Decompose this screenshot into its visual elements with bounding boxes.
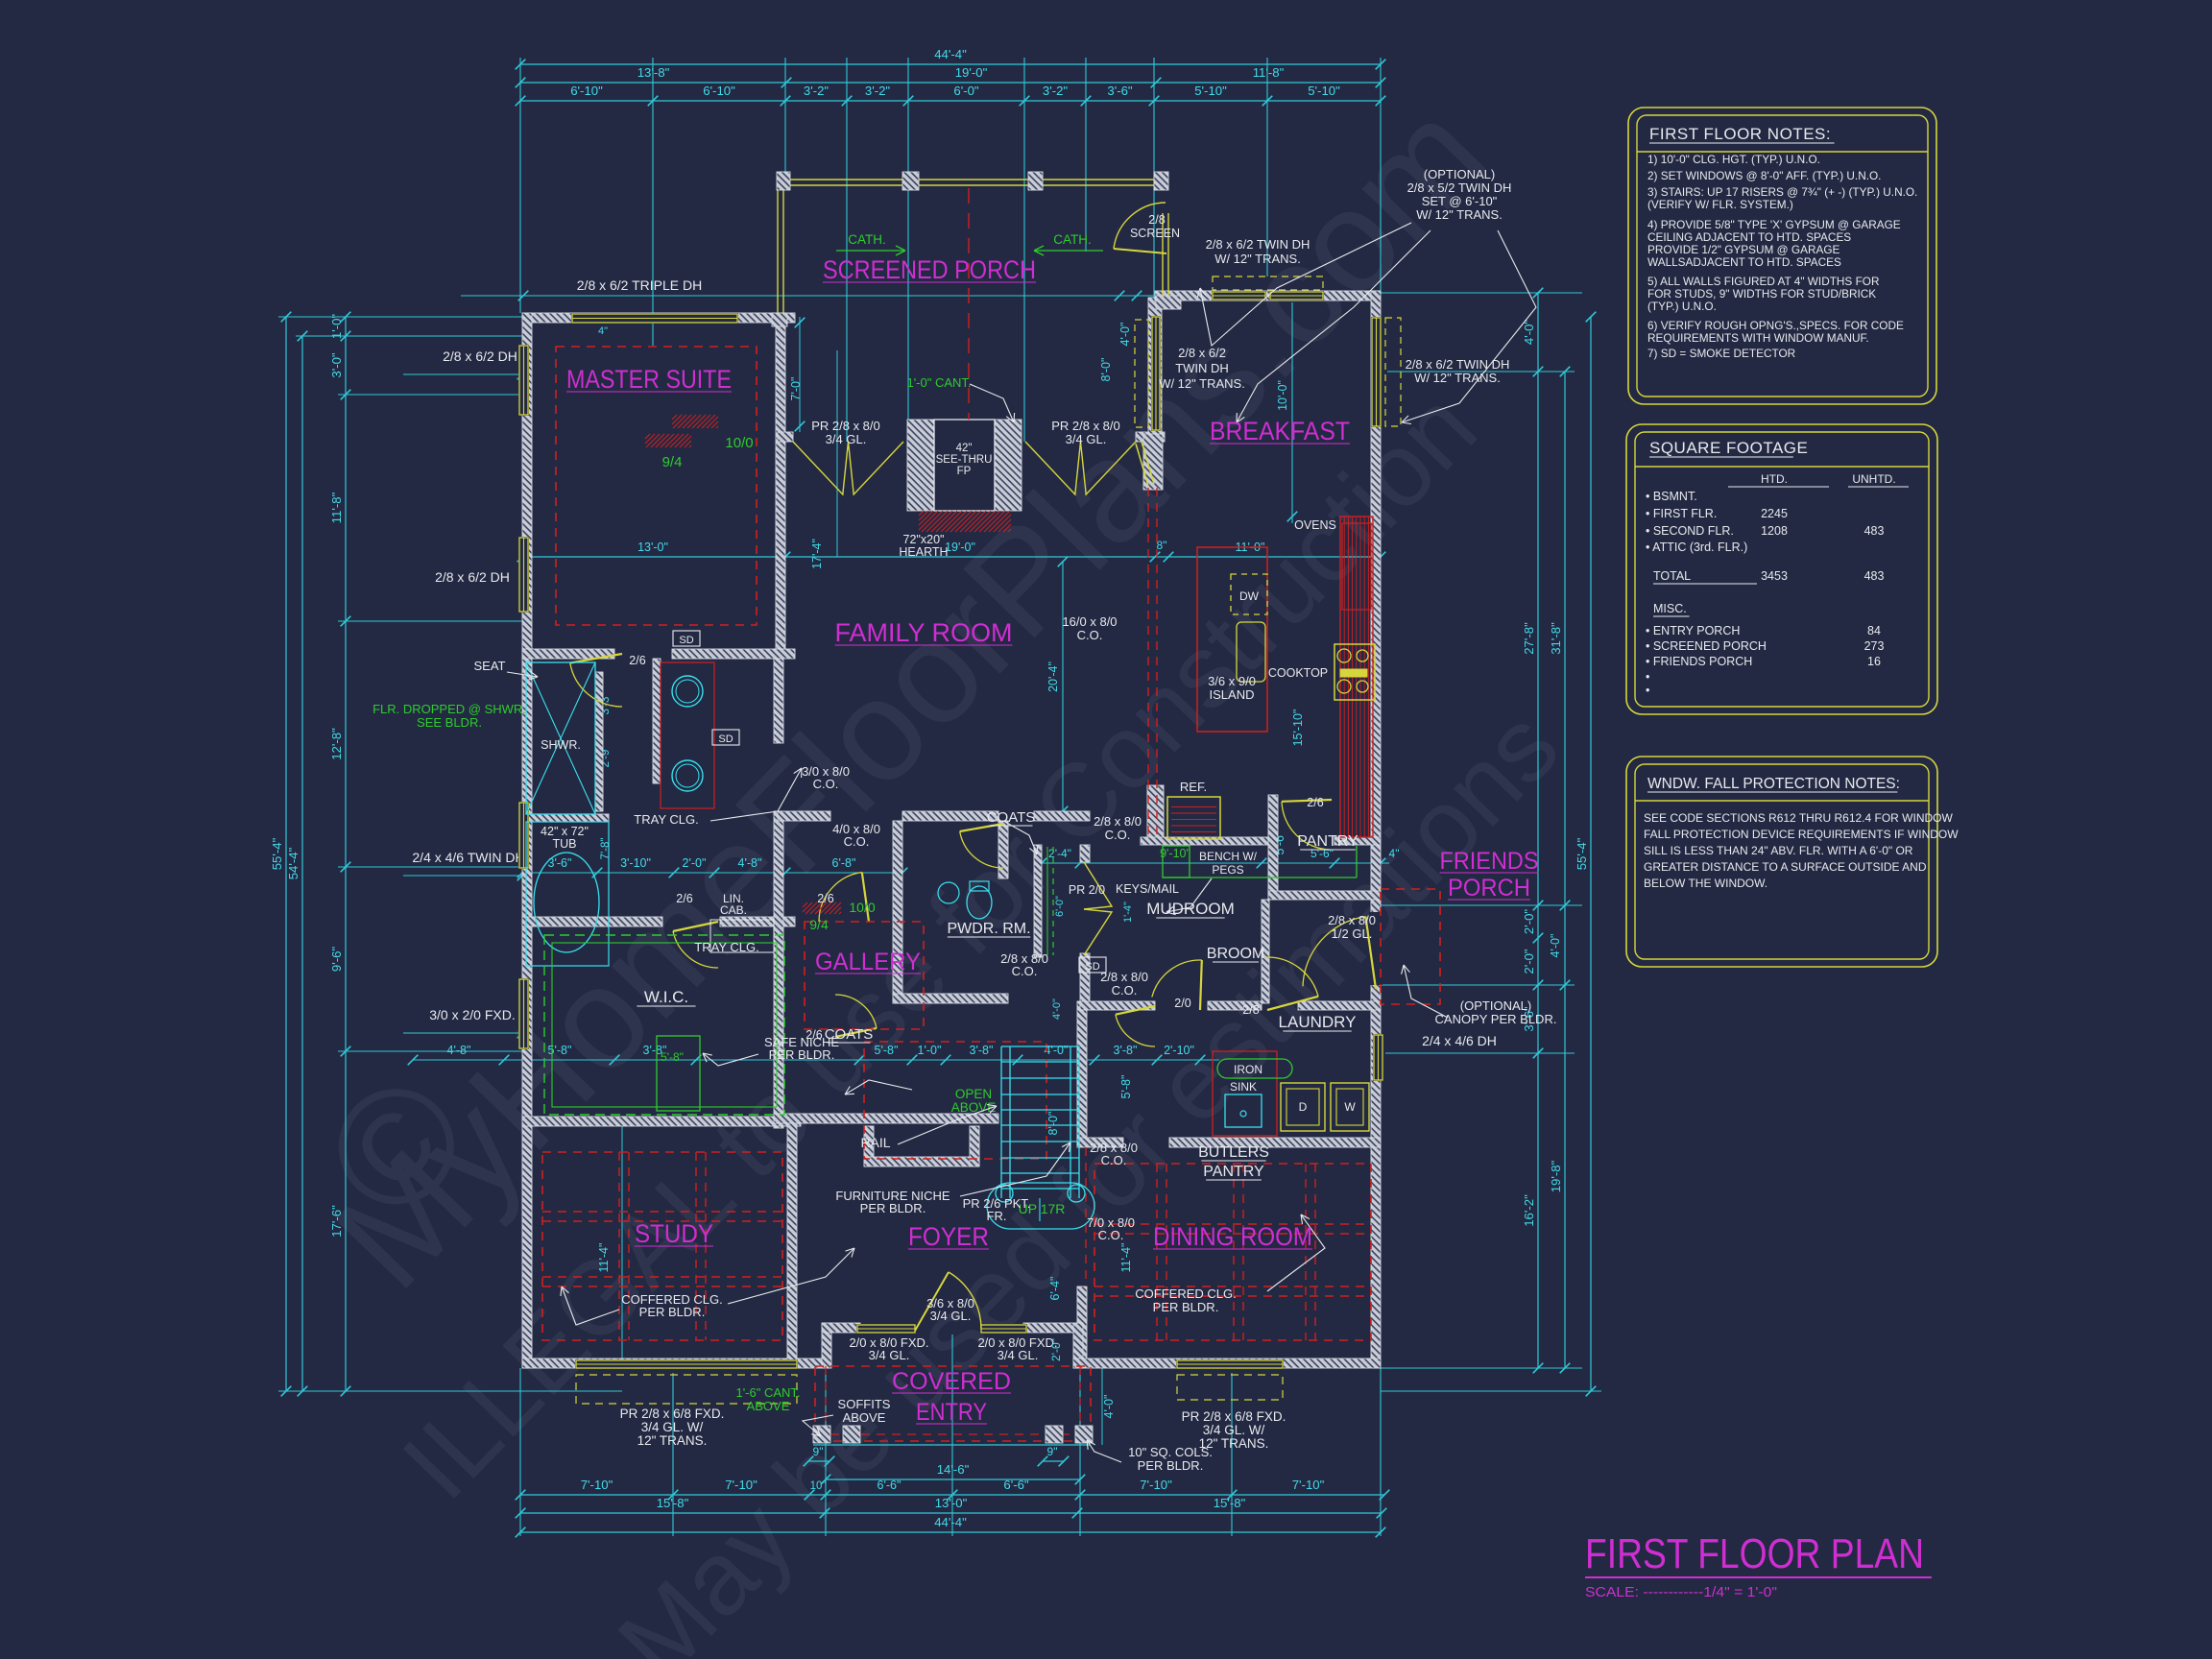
svg-text:27'-8": 27'-8" [1522,622,1536,655]
svg-text:SILL IS LESS THAN 24" ABV. FLR: SILL IS LESS THAN 24" ABV. FLR. WITH A 6… [1644,844,1913,857]
svg-text:GALLERY: GALLERY [815,949,921,975]
svg-text:2/0: 2/0 [1174,997,1190,1010]
svg-text:PER BLDR.: PER BLDR. [860,1201,926,1215]
svg-text:MASTER SUITE: MASTER SUITE [566,365,732,394]
svg-text:SOFFITS: SOFFITS [838,1397,891,1411]
svg-text:COATS: COATS [825,1026,874,1043]
svg-text:COOKTOP: COOKTOP [1268,666,1328,680]
svg-text:W/ 12" TRANS.: W/ 12" TRANS. [1214,252,1301,266]
svg-text:9": 9" [813,1445,824,1458]
svg-text:SET @ 6'-10": SET @ 6'-10" [1422,194,1498,208]
svg-text:TWIN DH: TWIN DH [1175,361,1229,375]
svg-text:17'-4": 17'-4" [810,539,824,569]
svg-text:C.O.: C.O. [1101,1153,1127,1167]
svg-text:13'-8": 13'-8" [637,65,670,80]
svg-text:FOYER: FOYER [908,1222,989,1251]
svg-text:• ENTRY PORCH: • ENTRY PORCH [1646,624,1740,637]
svg-text:1'-0": 1'-0" [918,1044,942,1057]
svg-text:CEILING ADJACENT TO HTD. SPACE: CEILING ADJACENT TO HTD. SPACES [1647,230,1851,244]
svg-text:2/8 x 8/0: 2/8 x 8/0 [1328,913,1376,927]
svg-text:SINK: SINK [1230,1080,1257,1094]
svg-text:3/4 GL. W/: 3/4 GL. W/ [1203,1423,1265,1437]
svg-text:• FRIENDS PORCH: • FRIENDS PORCH [1646,655,1752,668]
svg-text:(OPTIONAL): (OPTIONAL) [1460,998,1531,1013]
svg-text:2/8: 2/8 [1148,213,1165,227]
svg-text:ABOVE: ABOVE [747,1399,790,1413]
svg-text:3453: 3453 [1761,569,1788,583]
svg-text:DW: DW [1239,589,1260,603]
svg-text:REF.: REF. [1180,780,1207,794]
svg-text:PROVIDE 1/2" GYPSUM @ GARAGE: PROVIDE 1/2" GYPSUM @ GARAGE [1647,243,1840,256]
svg-text:13'-0": 13'-0" [637,541,668,554]
svg-text:2/8: 2/8 [1242,1003,1259,1017]
svg-text:FR.: FR. [987,1209,1007,1223]
svg-text:3) STAIRS: UP 17 RISERS @ 7¾": 3) STAIRS: UP 17 RISERS @ 7¾" (+ -) (TYP… [1647,185,1917,199]
svg-text:BROOM: BROOM [1207,946,1264,962]
svg-text:42": 42" [956,443,973,454]
svg-text:SEE BLDR.: SEE BLDR. [417,715,482,730]
svg-text:6) VERIFY ROUGH OPNG'S.,SPECS.: 6) VERIFY ROUGH OPNG'S.,SPECS. FOR CODE [1647,319,1904,332]
svg-text:PANTRY: PANTRY [1203,1164,1264,1180]
svg-text:KEYS/MAIL: KEYS/MAIL [1116,882,1179,896]
svg-text:12'-8": 12'-8" [329,728,344,760]
svg-text:10'-0": 10'-0" [1276,380,1289,411]
svg-text:FOR STUDS, 9" WIDTHS FOR STUD/: FOR STUDS, 9" WIDTHS FOR STUD/BRICK [1647,287,1876,301]
svg-text:31'-8": 31'-8" [1549,622,1563,655]
svg-text:1/2 GL.: 1/2 GL. [1332,926,1373,941]
svg-text:OPEN: OPEN [955,1087,992,1101]
svg-text:2'-0": 2'-0" [683,856,707,870]
svg-text:IRON: IRON [1234,1063,1262,1076]
svg-text:ABOVE: ABOVE [951,1100,997,1115]
svg-text:2/6: 2/6 [629,654,645,667]
svg-text:FLR. DROPPED @ SHWR.: FLR. DROPPED @ SHWR. [373,702,526,716]
svg-text:9/4: 9/4 [662,454,683,470]
svg-text:7'-10": 7'-10" [725,1478,757,1492]
svg-text:2/4 x 4/6 TWIN DH: 2/4 x 4/6 TWIN DH [412,850,524,865]
svg-text:273: 273 [1864,639,1885,653]
svg-text:TOTAL: TOTAL [1653,569,1691,583]
svg-text:OVENS: OVENS [1294,518,1336,532]
svg-text:7'-10": 7'-10" [1292,1478,1325,1492]
svg-text:5'-8": 5'-8" [661,1050,684,1064]
svg-text:5) ALL WALLS FIGURED AT 4" WID: 5) ALL WALLS FIGURED AT 4" WIDTHS FOR [1647,275,1879,288]
svg-text:BUTLERS: BUTLERS [1198,1144,1269,1161]
svg-text:54'-4": 54'-4" [286,847,301,879]
svg-text:11'-4": 11'-4" [597,1243,611,1273]
svg-text:2/8 x 5/2 TWIN DH: 2/8 x 5/2 TWIN DH [1407,180,1512,195]
svg-text:2/6: 2/6 [1307,796,1323,809]
svg-text:3'-6": 3'-6" [1107,84,1133,98]
svg-text:(OPTIONAL): (OPTIONAL) [1424,167,1495,181]
svg-text:SEE CODE SECTIONS R612 THRU R6: SEE CODE SECTIONS R612 THRU R612.4 FOR W… [1644,811,1954,825]
svg-text:GREATER DISTANCE TO A SURFACE: GREATER DISTANCE TO A SURFACE OUTSIDE AN… [1644,860,1927,874]
svg-text:3'-2": 3'-2" [804,84,829,98]
svg-text:PEGS: PEGS [1212,863,1243,877]
svg-text:8'-0": 8'-0" [1099,358,1113,382]
svg-text:2/8 x 6/2: 2/8 x 6/2 [1178,346,1226,360]
svg-text:4": 4" [598,325,608,337]
svg-text:9'-6": 9'-6" [329,947,344,973]
svg-text:PR 2/0: PR 2/0 [1069,883,1105,897]
svg-text:BREAKFAST: BREAKFAST [1210,417,1350,445]
svg-text:2/8 x 6/2 TWIN DH: 2/8 x 6/2 TWIN DH [1206,237,1310,252]
svg-text:SD: SD [1085,961,1099,973]
svg-text:FRIENDS: FRIENDS [1440,848,1539,875]
svg-text:7) SD = SMOKE DETECTOR: 7) SD = SMOKE DETECTOR [1647,347,1795,360]
svg-text:6'-10": 6'-10" [570,84,603,98]
svg-text:STUDY: STUDY [635,1219,713,1248]
svg-text:2'-0": 2'-0" [1049,1338,1063,1361]
svg-text:4'-8": 4'-8" [447,1044,471,1057]
svg-text:LAUNDRY: LAUNDRY [1279,1013,1357,1031]
svg-text:TRAY CLG.: TRAY CLG. [634,812,698,827]
svg-text:• BSMNT.: • BSMNT. [1646,490,1697,503]
svg-text:7'-0": 7'-0" [789,377,803,401]
svg-text:W/ 12" TRANS.: W/ 12" TRANS. [1159,376,1245,391]
svg-text:DINING ROOM: DINING ROOM [1153,1222,1312,1251]
svg-text:2'-0": 2'-0" [1522,909,1536,935]
svg-text:W.I.C.: W.I.C. [644,988,688,1006]
svg-text:5'-8": 5'-8" [548,1044,572,1057]
svg-text:1'-0" CANT.: 1'-0" CANT. [906,375,971,390]
svg-text:CATH.: CATH. [1053,232,1092,247]
svg-text:5'-10": 5'-10" [1308,84,1340,98]
svg-text:1'-4": 1'-4" [1122,902,1134,923]
svg-text:2/8 x 6/2 DH: 2/8 x 6/2 DH [443,349,517,364]
svg-text:PWDR. RM.: PWDR. RM. [947,921,1030,937]
svg-text:4'-0": 4'-0" [1102,1395,1116,1419]
svg-text:6'-10": 6'-10" [703,84,735,98]
svg-text:2'-4": 2'-4" [1048,847,1071,860]
svg-text:ENTRY: ENTRY [916,1399,987,1426]
svg-text:10/0: 10/0 [849,900,875,915]
svg-text:13'-0": 13'-0" [935,1496,968,1510]
svg-text:2245: 2245 [1761,507,1788,520]
svg-text:55'-4": 55'-4" [270,837,284,870]
svg-text:W/ 12" TRANS.: W/ 12" TRANS. [1416,207,1503,222]
svg-text:HTD.: HTD. [1761,472,1788,486]
svg-text:PR 2/8 x 8/0: PR 2/8 x 8/0 [811,419,880,433]
svg-text:483: 483 [1864,524,1885,538]
svg-text:CANOPY PER BLDR.: CANOPY PER BLDR. [1435,1012,1557,1026]
svg-text:BELOW THE WINDOW.: BELOW THE WINDOW. [1644,877,1767,890]
svg-text:• FIRST FLR.: • FIRST FLR. [1646,507,1717,520]
svg-text:(VERIFY W/ FLR. SYSTEM.): (VERIFY W/ FLR. SYSTEM.) [1647,198,1793,211]
svg-text:8": 8" [1157,539,1167,552]
svg-text:5'-8": 5'-8" [1119,1075,1133,1099]
svg-text:W/ 12" TRANS.: W/ 12" TRANS. [1414,371,1501,385]
svg-text:20'-4": 20'-4" [1046,661,1060,692]
svg-text:16: 16 [1867,655,1881,668]
svg-text:SCALE: ------------1/4" = 1'-0: SCALE: ------------1/4" = 1'-0" [1585,1584,1777,1600]
svg-text:4) PROVIDE 5/8" TYPE 'X' GYPSU: 4) PROVIDE 5/8" TYPE 'X' GYPSUM @ GARAGE [1647,218,1901,231]
svg-text:RAIL: RAIL [860,1135,890,1150]
svg-text:2/8 x 6/2 TRIPLE DH: 2/8 x 6/2 TRIPLE DH [577,277,702,293]
svg-text:PER BLDR.: PER BLDR. [769,1047,835,1062]
svg-text:6'-6": 6'-6" [878,1479,902,1492]
svg-text:C.O.: C.O. [1098,1228,1124,1242]
svg-text:4'-0": 4'-0" [1118,323,1132,347]
svg-text:2/4 x 4/6 DH: 2/4 x 4/6 DH [1422,1033,1497,1048]
svg-text:72"x20": 72"x20" [903,533,945,546]
svg-text:8'-0": 8'-0" [1046,1112,1060,1136]
svg-text:FIRST FLOOR NOTES:: FIRST FLOOR NOTES: [1649,125,1831,143]
svg-text:SEE-THRU: SEE-THRU [936,454,993,466]
svg-text:6'-0": 6'-0" [953,84,979,98]
svg-text:19'-0": 19'-0" [945,541,975,554]
svg-text:15'-10": 15'-10" [1291,709,1305,747]
svg-text:C.O.: C.O. [1105,828,1131,842]
svg-text:TUB: TUB [553,837,577,851]
svg-text:C.O.: C.O. [1012,964,1038,978]
svg-text:6'-4": 6'-4" [1048,1277,1062,1301]
svg-text:1) 10'-0" CLG. HGT. (TYP.) U.: 1) 10'-0" CLG. HGT. (TYP.) U.N.O. [1647,153,1820,166]
svg-text:44'-4": 44'-4" [934,1515,967,1529]
svg-text:4'-8": 4'-8" [738,856,762,870]
svg-text:4'-0": 4'-0" [1549,934,1562,958]
svg-text:6'-0": 6'-0" [1054,896,1066,917]
svg-text:• SCREENED PORCH: • SCREENED PORCH [1646,639,1767,653]
svg-text:5'-8": 5'-8" [875,1044,899,1057]
svg-text:1208: 1208 [1761,524,1788,538]
svg-text:TRAY CLG.: TRAY CLG. [694,940,758,954]
svg-text:2'-0": 2'-0" [1522,949,1536,974]
svg-text:3/4 GL.: 3/4 GL. [930,1309,972,1323]
svg-text:12" TRANS.: 12" TRANS. [637,1433,708,1448]
svg-text:3'-8": 3'-8" [970,1044,994,1057]
svg-text:COATS: COATS [987,809,1036,826]
svg-text:2/8 x 8/0: 2/8 x 8/0 [1094,814,1142,829]
svg-text:• ATTIC (3rd. FLR.): • ATTIC (3rd. FLR.) [1646,541,1747,554]
svg-text:PR 2/8 x 8/0: PR 2/8 x 8/0 [1051,419,1120,433]
svg-text:7'-10": 7'-10" [1140,1478,1172,1492]
svg-text:FAMILY ROOM: FAMILY ROOM [835,618,1013,647]
svg-text:PR 2/8 x 6/8 FXD.: PR 2/8 x 6/8 FXD. [1182,1409,1286,1424]
svg-text:3/4 GL.: 3/4 GL. [869,1348,910,1362]
svg-text:16/0 x 8/0: 16/0 x 8/0 [1062,614,1117,629]
svg-text:11'-8": 11'-8" [1253,65,1285,80]
svg-text:D: D [1299,1100,1308,1114]
svg-text:PORCH: PORCH [1448,875,1530,902]
svg-text:FIRST FLOOR PLAN: FIRST FLOOR PLAN [1585,1530,1924,1577]
svg-text:1'-6" CANT.: 1'-6" CANT. [735,1385,800,1400]
svg-text:4'-0": 4'-0" [1045,1044,1069,1057]
svg-text:• SECOND FLR.: • SECOND FLR. [1646,524,1734,538]
svg-text:PER BLDR.: PER BLDR. [639,1305,706,1319]
svg-text:SQUARE FOOTAGE: SQUARE FOOTAGE [1649,439,1808,457]
svg-text:2/8 x 6/2 DH: 2/8 x 6/2 DH [435,569,510,585]
svg-text:ABOVE: ABOVE [843,1410,886,1425]
svg-text:SCREENED PORCH: SCREENED PORCH [823,255,1036,284]
svg-text:•: • [1646,670,1649,684]
svg-text:4": 4" [1389,847,1400,860]
svg-text:PANTRY: PANTRY [1297,833,1358,850]
svg-text:PR 2/8 x 6/8 FXD.: PR 2/8 x 6/8 FXD. [620,1407,725,1421]
svg-text:5'-10": 5'-10" [1194,84,1227,98]
svg-text:FP: FP [957,466,972,477]
svg-text:7'-8": 7'-8" [600,838,612,860]
svg-text:2/6: 2/6 [676,892,692,905]
svg-text:MISC.: MISC. [1653,602,1687,615]
svg-text:19'-0": 19'-0" [955,65,988,80]
svg-text:19'-8": 19'-8" [1549,1160,1563,1192]
svg-text:3'-8": 3'-8" [1114,1044,1138,1057]
svg-text:BENCH W/: BENCH W/ [1199,850,1258,863]
svg-text:9/4: 9/4 [809,917,829,932]
svg-text:11'-8": 11'-8" [329,492,344,523]
svg-text:CATH.: CATH. [848,232,886,247]
svg-text:2'-10": 2'-10" [1164,1044,1194,1057]
svg-text:3/0 x 2/0 FXD.: 3/0 x 2/0 FXD. [429,1007,515,1022]
svg-text:SD: SD [718,733,733,745]
svg-text:10/0: 10/0 [725,435,753,451]
svg-text:C.O.: C.O. [1112,983,1138,998]
svg-text:ISLAND: ISLAND [1210,687,1255,702]
svg-text:C.O.: C.O. [1077,628,1103,642]
svg-text:UNHTD.: UNHTD. [1852,472,1895,486]
svg-text:3/4 GL. W/: 3/4 GL. W/ [641,1420,704,1434]
svg-text:SD: SD [679,635,693,646]
svg-text:14'-6": 14'-6" [937,1462,970,1477]
svg-text:9'-10": 9'-10" [1160,847,1190,860]
svg-text:12" TRANS.: 12" TRANS. [1199,1436,1269,1451]
svg-text:COFFERED CLG.: COFFERED CLG. [1135,1286,1236,1301]
svg-text:3/4 GL.: 3/4 GL. [826,432,867,446]
svg-text:16'-2": 16'-2" [1522,1194,1536,1227]
svg-text:55'-4": 55'-4" [1575,837,1589,870]
svg-text:HEARTH: HEARTH [899,545,948,559]
svg-text:7'-10": 7'-10" [581,1478,613,1492]
svg-text:44'-4": 44'-4" [934,47,967,61]
svg-text:WNDW. FALL PROTECTION NOTES:: WNDW. FALL PROTECTION NOTES: [1647,776,1900,792]
svg-text:11'-4": 11'-4" [1119,1243,1133,1273]
svg-text:COVERED: COVERED [892,1368,1011,1395]
svg-text:WALLSADJACENT TO HTD. SPACES: WALLSADJACENT TO HTD. SPACES [1647,255,1841,269]
svg-text:W: W [1344,1100,1356,1114]
svg-text:42" x 72": 42" x 72" [541,825,589,838]
svg-text:MUDROOM: MUDROOM [1146,900,1235,918]
svg-text:6'-8": 6'-8" [832,856,856,870]
svg-text:PER BLDR.: PER BLDR. [1153,1300,1219,1314]
svg-text:17'-6": 17'-6" [329,1205,344,1238]
svg-text:3'-0": 3'-0" [329,352,344,378]
svg-text:C.O.: C.O. [844,834,870,849]
svg-text:SCREEN: SCREEN [1130,227,1180,240]
svg-text:•: • [1646,684,1649,697]
svg-text:FALL PROTECTION DEVICE REQUIRE: FALL PROTECTION DEVICE REQUIREMENTS IF W… [1644,828,1959,841]
svg-text:(TYP.) U.N.O.: (TYP.) U.N.O. [1647,300,1717,313]
svg-text:SEAT: SEAT [474,659,506,673]
svg-text:3/4 GL.: 3/4 GL. [998,1348,1039,1362]
svg-text:SHWR.: SHWR. [541,738,581,752]
svg-text:C.O.: C.O. [813,777,839,791]
svg-text:3'-10": 3'-10" [620,856,651,870]
svg-text:3/6 x 9/0: 3/6 x 9/0 [1208,674,1256,688]
svg-text:CAB.: CAB. [720,903,747,917]
svg-text:9": 9" [1047,1445,1058,1458]
svg-text:3/4 GL.: 3/4 GL. [1066,432,1107,446]
svg-text:84: 84 [1867,624,1881,637]
svg-text:2/8 x 8/0: 2/8 x 8/0 [1100,970,1148,984]
svg-text:PER BLDR.: PER BLDR. [1138,1458,1204,1473]
svg-text:483: 483 [1864,569,1885,583]
svg-text:REQUIREMENTS WITH WINDOW MANUF: REQUIREMENTS WITH WINDOW MANUF. [1647,331,1869,345]
svg-text:4'-0": 4'-0" [1051,998,1063,1020]
svg-text:2) SET WINDOWS @ 8'-0" AFF. (T: 2) SET WINDOWS @ 8'-0" AFF. (TYP.) U.N.O… [1647,169,1881,182]
svg-text:3'-2": 3'-2" [1043,84,1069,98]
svg-text:15'-8": 15'-8" [1214,1496,1246,1510]
svg-text:3'-2": 3'-2" [865,84,891,98]
